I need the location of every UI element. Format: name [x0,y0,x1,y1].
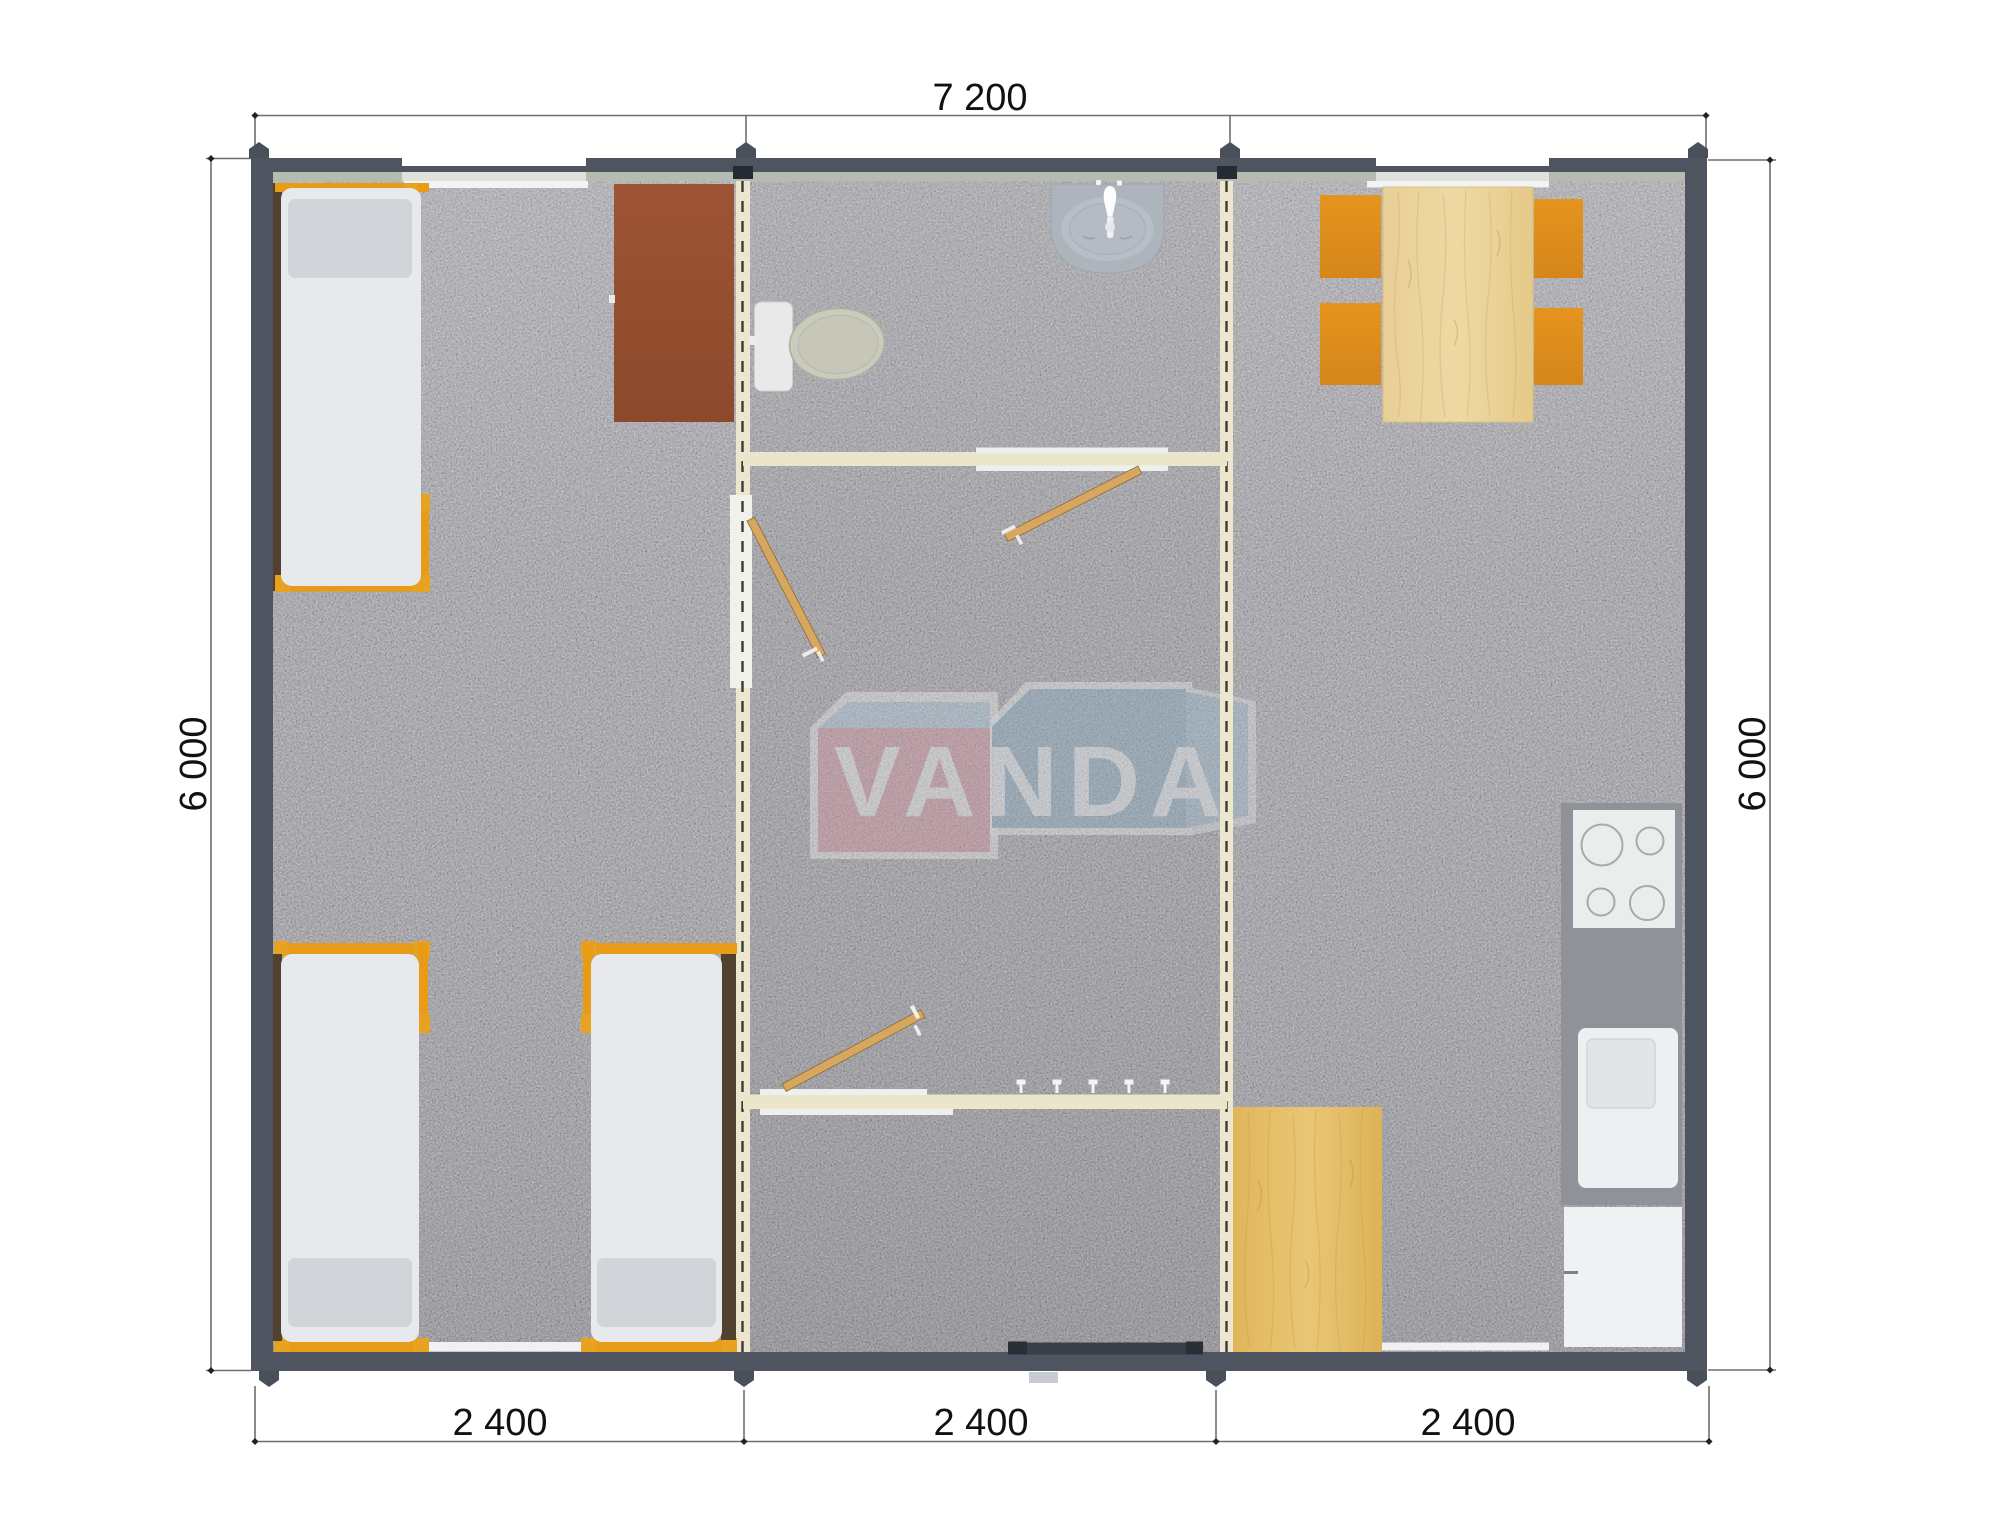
svg-text:VANDA: VANDA [834,726,1232,838]
svg-text:7 200: 7 200 [932,77,1027,119]
svg-text:2 400: 2 400 [1420,1402,1515,1444]
svg-text:6 000: 6 000 [173,716,215,811]
svg-text:2 400: 2 400 [452,1402,547,1444]
svg-text:2 400: 2 400 [933,1402,1028,1444]
svg-text:6 000: 6 000 [1732,716,1774,811]
